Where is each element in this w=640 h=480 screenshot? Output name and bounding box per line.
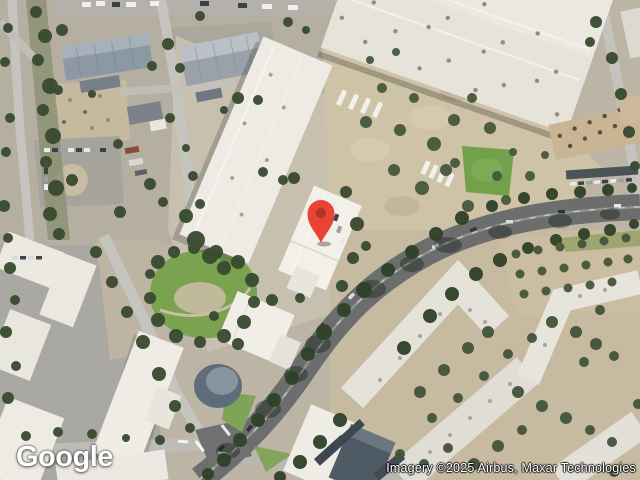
pin-shadow bbox=[317, 242, 331, 247]
map-viewport[interactable]: Google Imagery ©2025 Airbus, Maxar Techn… bbox=[0, 0, 640, 480]
location-pin-icon[interactable] bbox=[301, 197, 341, 247]
pin-dot bbox=[316, 208, 326, 218]
round-building-roof bbox=[194, 364, 242, 408]
google-logo[interactable]: Google bbox=[16, 441, 113, 474]
map-attribution: Imagery ©2025 Airbus, Maxar Technologies bbox=[386, 461, 636, 475]
pin-body bbox=[308, 200, 335, 243]
